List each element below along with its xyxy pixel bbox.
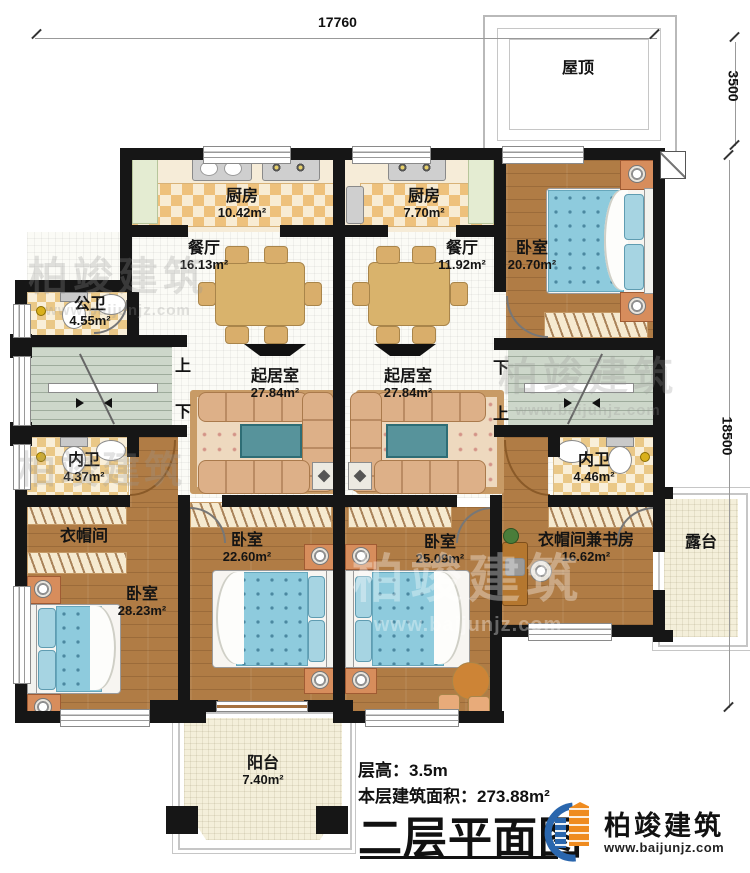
wall <box>120 148 132 290</box>
room-label-bedroom-mid-left: 卧室 22.60m² <box>223 532 271 564</box>
window <box>502 146 584 164</box>
dim-depth-label: 18500 <box>719 417 735 456</box>
dining-chair <box>225 326 249 344</box>
room-area: 16.13m² <box>180 258 228 272</box>
dining-chair <box>376 246 400 264</box>
dim-tick <box>723 150 734 161</box>
wall <box>127 437 139 457</box>
room-label-living-right: 起居室 27.84m² <box>384 368 432 400</box>
window <box>13 444 31 490</box>
wall <box>456 225 494 237</box>
pillow <box>38 608 56 648</box>
brand-name: 柏竣建筑 <box>604 804 724 843</box>
window <box>528 623 612 641</box>
window <box>352 146 431 164</box>
dim-roof-label: 3500 <box>726 70 742 101</box>
lamp <box>352 671 370 689</box>
floor-plan: 17760 3500 18500 屋顶 <box>0 0 750 873</box>
room-area: 4.55m² <box>69 314 110 328</box>
logo-building <box>569 802 589 846</box>
floor-height-text: 层高：3.5m <box>358 756 448 781</box>
wall <box>15 335 187 347</box>
dining-chair <box>376 326 400 344</box>
flue-box <box>660 151 686 179</box>
wall <box>425 148 507 160</box>
room-label-bath-left: 内卫 4.37m² <box>63 452 104 484</box>
closet-rail <box>27 505 127 525</box>
stair-rail <box>524 383 634 393</box>
room-area: 4.37m² <box>63 470 104 484</box>
dining-chair <box>198 282 216 306</box>
wall <box>285 148 357 160</box>
stove-burner <box>272 163 281 172</box>
plant <box>503 528 519 544</box>
shower-knob <box>640 452 650 462</box>
wall <box>280 225 388 237</box>
kitchen-right-appliance <box>346 186 364 224</box>
computer-monitor <box>505 558 525 576</box>
wall <box>146 711 206 723</box>
dining-table-left <box>215 262 305 326</box>
pillow <box>624 194 644 240</box>
room-label-dining-right: 餐厅 11.92m² <box>438 240 486 272</box>
dining-chair <box>352 282 370 306</box>
sliding-door <box>216 701 308 712</box>
room-name: 公卫 <box>69 296 110 314</box>
side-table <box>348 462 372 490</box>
kitchen-right-counter <box>468 158 494 224</box>
room-name: 起居室 <box>384 368 432 386</box>
closet-rail <box>27 552 127 574</box>
window <box>13 356 31 426</box>
lamp <box>311 547 329 565</box>
room-area: 10.42m² <box>218 206 266 220</box>
sofa <box>374 460 486 494</box>
room-name: 厨房 <box>218 188 266 206</box>
lamp <box>628 297 646 315</box>
room-area: 28.23m² <box>118 604 166 618</box>
room-name: 卧室 <box>223 532 271 550</box>
stove-burner <box>296 163 305 172</box>
room-area: 11.92m² <box>438 258 486 272</box>
wall <box>345 495 457 507</box>
room-label-dining-left: 餐厅 16.13m² <box>180 240 228 272</box>
room-name: 屋顶 <box>562 60 594 78</box>
wall <box>222 495 333 507</box>
room-area: 20.70m² <box>508 258 556 272</box>
pillow <box>308 620 325 662</box>
brand-url: www.baijunjz.com <box>604 840 724 855</box>
dining-chair <box>264 246 288 264</box>
wall <box>120 225 188 237</box>
balcony-pier <box>316 806 348 834</box>
dim-tick <box>729 32 740 43</box>
lamp <box>34 580 52 598</box>
terrace-floor <box>664 499 738 637</box>
brand-logo-icon <box>545 798 601 856</box>
room-name: 衣帽间 <box>60 528 108 546</box>
pillow <box>38 650 56 690</box>
wall <box>607 625 665 637</box>
room-name: 卧室 <box>508 240 556 258</box>
stair-arrow <box>592 398 600 408</box>
room-label-bedroom-bottom-left: 卧室 28.23m² <box>118 586 166 618</box>
room-name: 露台 <box>685 534 717 552</box>
dining-chair <box>225 246 249 264</box>
wall <box>490 495 502 723</box>
room-name: 内卫 <box>573 452 614 470</box>
room-name: 卧室 <box>416 534 464 552</box>
wall <box>127 292 139 335</box>
room-label-bath-right: 内卫 4.46m² <box>573 452 614 484</box>
balcony-pier <box>166 806 198 834</box>
stairs-up-label: 上 <box>175 352 191 376</box>
mattress <box>236 572 308 666</box>
room-area: 25.09m² <box>416 552 464 566</box>
dining-chair <box>264 326 288 344</box>
shower-knob <box>36 452 46 462</box>
room-name: 餐厅 <box>438 240 486 258</box>
dining-chair <box>412 326 436 344</box>
wall <box>548 437 560 457</box>
wall <box>178 495 190 723</box>
room-label-cloak-study: 衣帽间兼书房 16.62m² <box>538 532 634 564</box>
room-name: 阳台 <box>242 755 283 773</box>
wall <box>494 338 665 350</box>
room-name: 衣帽间兼书房 <box>538 532 634 550</box>
sofa <box>198 460 310 494</box>
lamp <box>352 547 370 565</box>
title-underline <box>360 856 558 859</box>
room-area: 27.84m² <box>251 386 299 400</box>
pillow <box>355 576 372 618</box>
dining-chair <box>304 282 322 306</box>
room-name: 餐厅 <box>180 240 228 258</box>
wall <box>494 425 665 437</box>
room-label-terrace: 露台 <box>685 534 717 552</box>
stove-burner <box>422 163 431 172</box>
wall <box>578 148 665 160</box>
wall <box>653 510 665 552</box>
window <box>13 586 31 684</box>
window <box>60 709 150 727</box>
shower-knob <box>36 306 46 316</box>
stairs-up-label: 上 <box>493 400 509 424</box>
stairs-down-label: 下 <box>175 398 191 422</box>
wall <box>120 148 210 160</box>
room-area: 16.62m² <box>538 550 634 564</box>
room-name: 卧室 <box>118 586 166 604</box>
logo-tower <box>555 818 566 848</box>
room-label-kitchen-right: 厨房 7.70m² <box>403 188 444 220</box>
stair-arrow <box>564 398 572 408</box>
stove-burner <box>398 163 407 172</box>
room-label-kitchen-left: 厨房 10.42m² <box>218 188 266 220</box>
window <box>13 304 31 338</box>
room-label-bedroom-mid-right: 卧室 25.09m² <box>416 534 464 566</box>
wall <box>15 711 63 723</box>
wall <box>15 280 132 292</box>
pillow <box>355 620 372 662</box>
dining-chair <box>412 246 436 264</box>
room-label-cloakroom: 衣帽间 <box>60 528 108 546</box>
lamp <box>628 165 646 183</box>
dim-width-label: 17760 <box>318 14 357 30</box>
stairs-down-label: 下 <box>493 354 509 378</box>
room-label-public-bath: 公卫 4.55m² <box>69 296 110 328</box>
lamp <box>311 671 329 689</box>
room-label-living-left: 起居室 27.84m² <box>251 368 299 400</box>
room-name: 起居室 <box>251 368 299 386</box>
room-name: 厨房 <box>403 188 444 206</box>
room-area: 7.70m² <box>403 206 444 220</box>
dining-chair <box>450 282 468 306</box>
room-name: 内卫 <box>63 452 104 470</box>
room-area: 4.46m² <box>573 470 614 484</box>
coffee-table-right <box>386 424 448 458</box>
headboard <box>345 570 354 668</box>
wall <box>548 495 665 507</box>
window <box>203 146 291 164</box>
room-area: 22.60m² <box>223 550 271 564</box>
wall <box>15 425 187 437</box>
room-label-bedroom-top-right: 卧室 20.70m² <box>508 240 556 272</box>
window <box>365 709 459 727</box>
room-area: 27.84m² <box>384 386 432 400</box>
roof-outline-inner <box>509 39 649 130</box>
kitchen-left-counter <box>132 158 158 224</box>
coffee-table-left <box>240 424 302 458</box>
pillow <box>308 576 325 618</box>
pillow <box>624 244 644 290</box>
room-area: 7.40m² <box>242 773 283 787</box>
wall <box>15 495 130 507</box>
stair-arrow <box>104 398 112 408</box>
stair-rail <box>48 383 158 393</box>
room-label-balcony: 阳台 7.40m² <box>242 755 283 787</box>
wall <box>494 160 506 292</box>
room-label-roof: 屋顶 <box>562 60 594 78</box>
stair-arrow <box>76 398 84 408</box>
dimension-line-top <box>35 38 657 39</box>
